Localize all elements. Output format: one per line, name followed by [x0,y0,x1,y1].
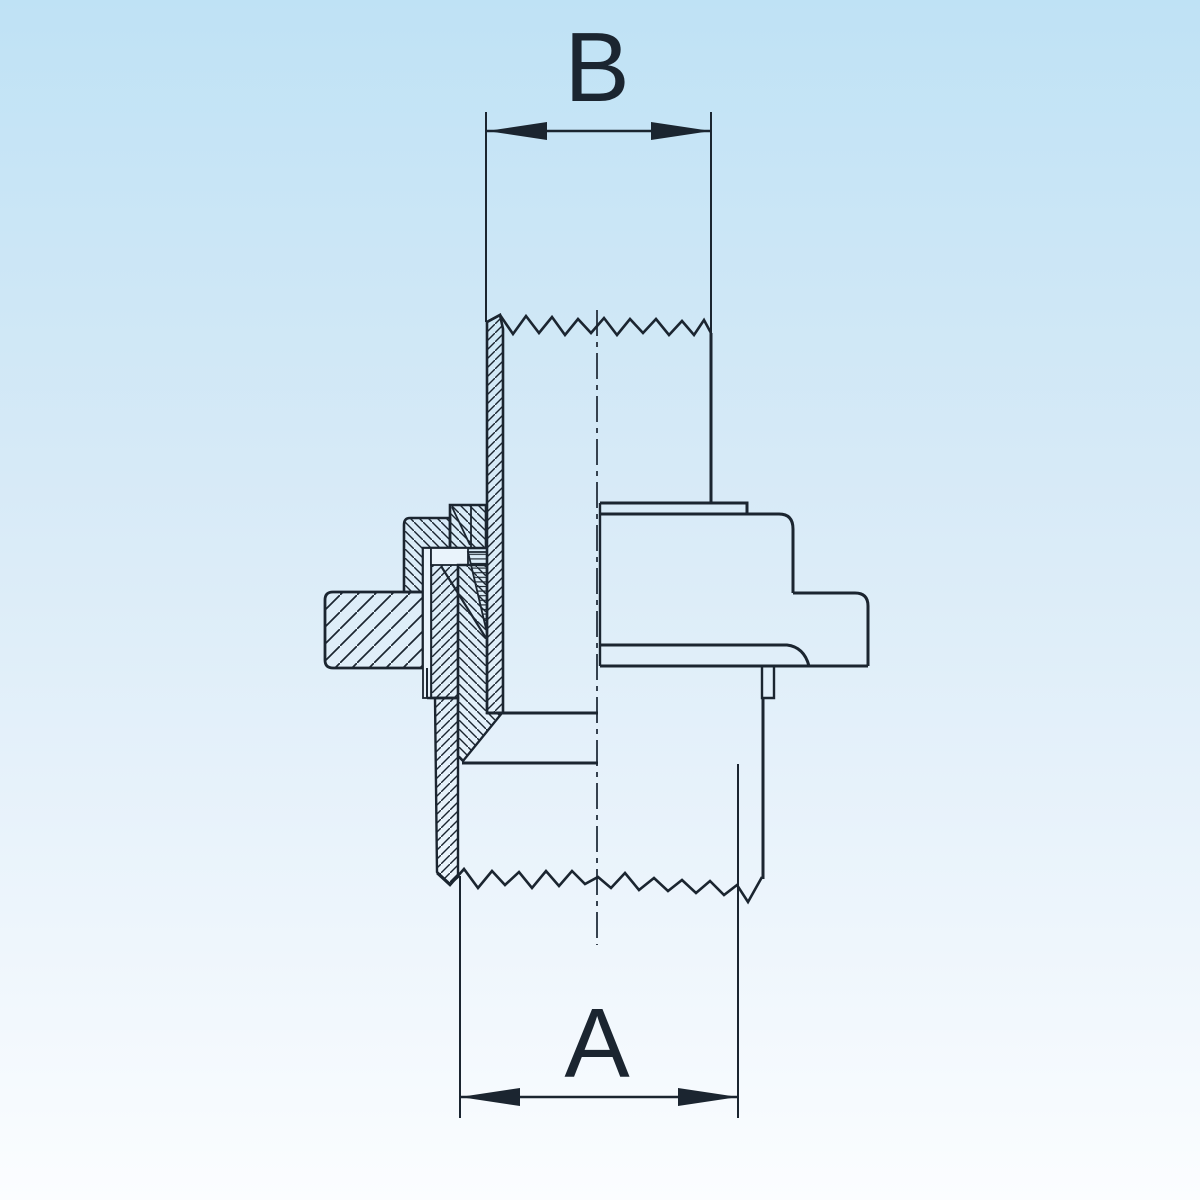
seal-groove [431,548,468,565]
break-line-top [487,315,711,335]
drawing-svg: B A [0,0,1200,1200]
locating-tab [762,666,774,698]
flange-slab-section [325,592,423,668]
arrowhead-left-icon [487,122,547,140]
break-line-bottom [437,869,762,902]
dimension-a-label: A [564,988,630,1098]
arrowhead-right-icon [678,1088,738,1106]
dimension-b-label: B [564,12,629,122]
dimension-b: B [486,12,711,333]
body-elevation [600,503,868,698]
technical-drawing: B A [0,0,1200,1200]
dimension-a: A [460,764,738,1118]
arrowhead-right-icon [651,122,711,140]
arrowhead-left-icon [460,1088,520,1106]
body-top-ring-section [450,505,486,548]
